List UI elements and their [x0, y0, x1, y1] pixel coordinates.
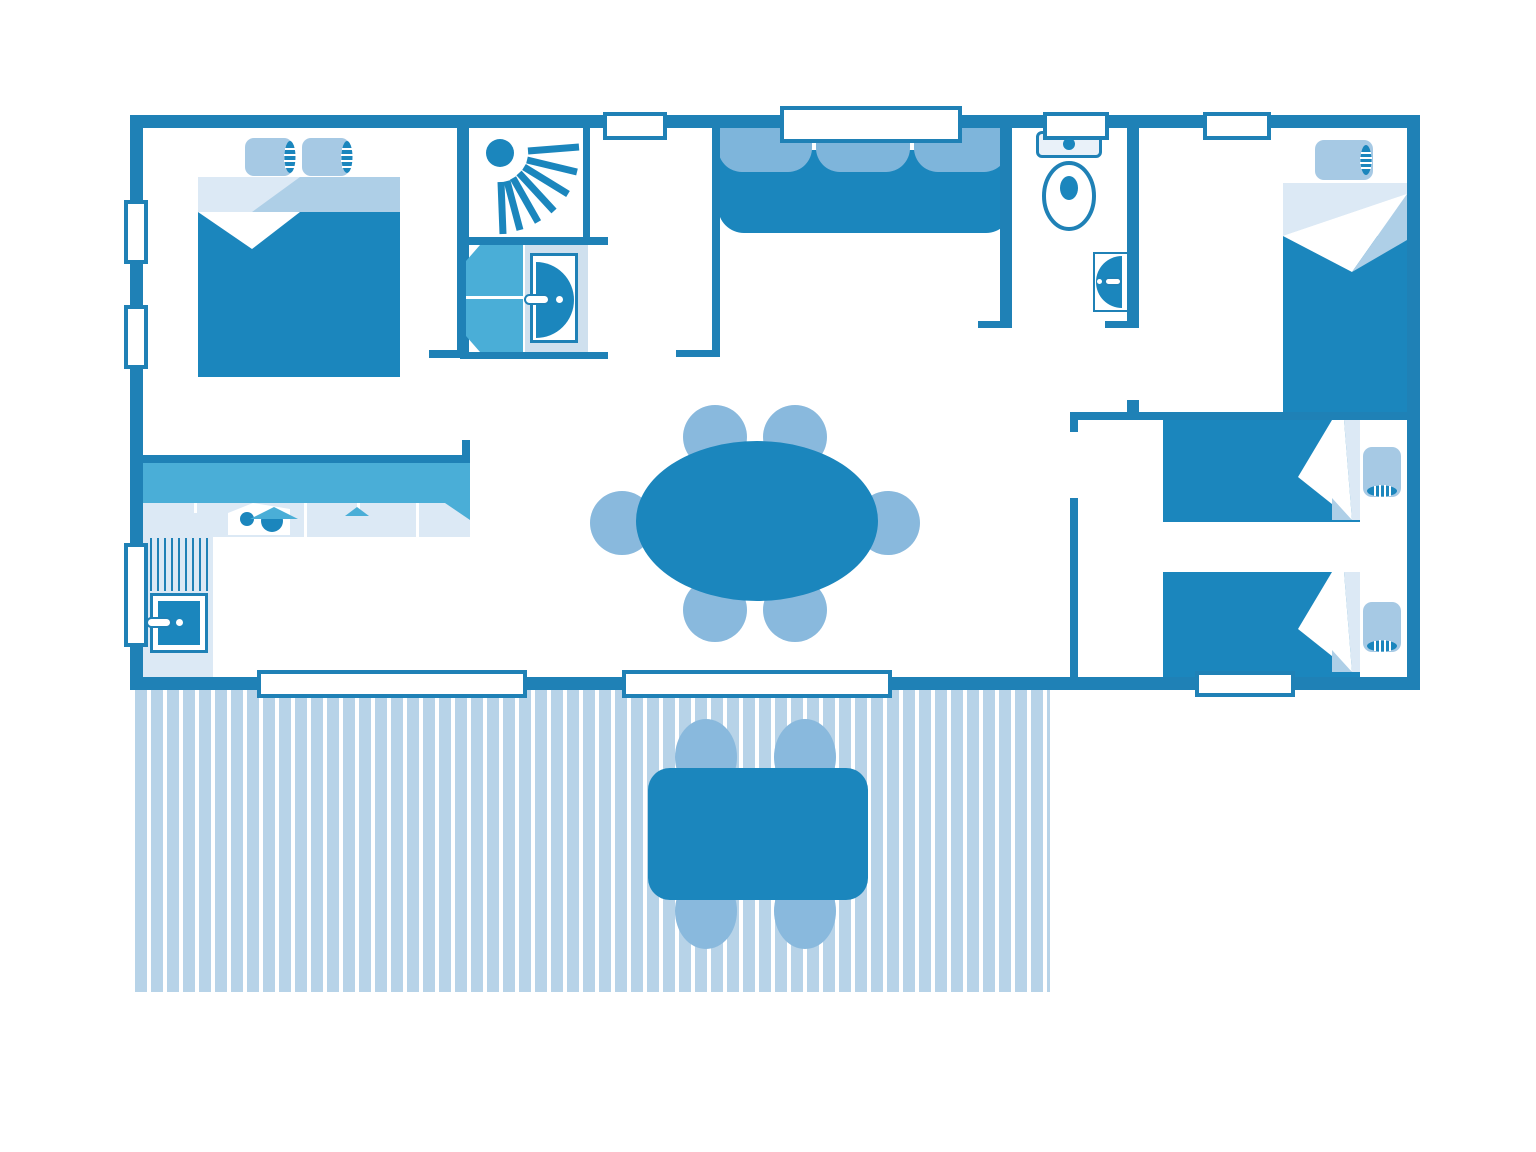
washbasin-faucet	[524, 294, 550, 305]
toilet-icon	[1044, 138, 1094, 229]
twin-bed-fold	[1298, 572, 1360, 672]
detail-overlay	[0, 0, 1536, 1152]
wc-washbasin-faucet-knob	[1097, 279, 1102, 284]
pillow-gather-icon	[1360, 145, 1372, 175]
twin-bed-fold	[1298, 420, 1360, 520]
washbasin-faucet-knob	[556, 296, 563, 303]
wardrobe-icon	[466, 245, 523, 352]
worktop-corner	[445, 503, 470, 520]
pillow-gather-icon	[284, 141, 353, 173]
floor-plan	[0, 0, 1536, 1152]
wc-washbasin-faucet	[1104, 277, 1122, 286]
single-bed-fold	[1283, 183, 1407, 272]
double-bed-fold	[198, 177, 300, 249]
pillow-gather-icon	[1367, 485, 1397, 497]
cabinet-door-mark	[345, 507, 369, 516]
shower-spray-icon	[486, 139, 579, 234]
pillow-gather-icon	[1367, 640, 1397, 652]
